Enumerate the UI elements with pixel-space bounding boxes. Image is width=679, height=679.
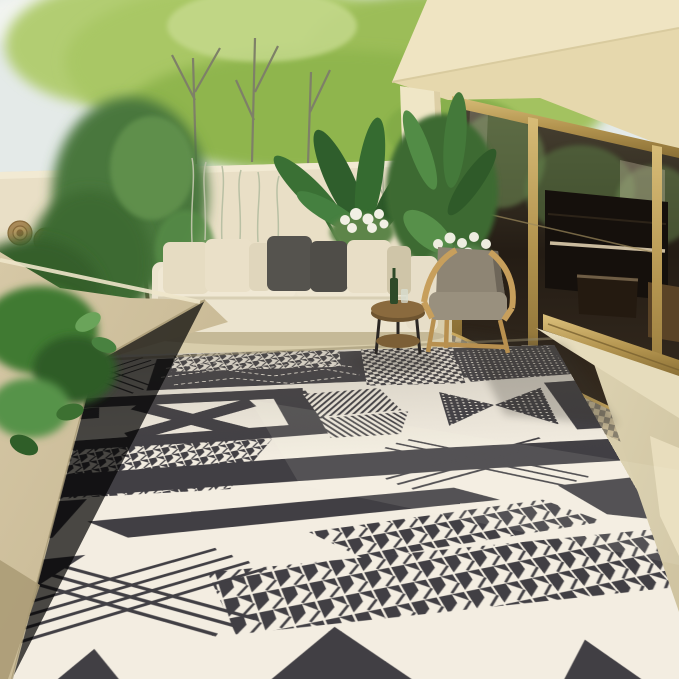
foreground bbox=[0, 0, 679, 679]
patio-photo bbox=[0, 0, 679, 679]
drinking-glass bbox=[401, 289, 408, 303]
chair-seat-cushion bbox=[429, 292, 507, 320]
side-table bbox=[371, 268, 425, 354]
table-top bbox=[371, 300, 425, 318]
wine-bottle bbox=[390, 268, 398, 304]
table-lower-shelf bbox=[376, 334, 420, 348]
table-shadow bbox=[351, 351, 439, 373]
sun-streak bbox=[250, 400, 679, 565]
